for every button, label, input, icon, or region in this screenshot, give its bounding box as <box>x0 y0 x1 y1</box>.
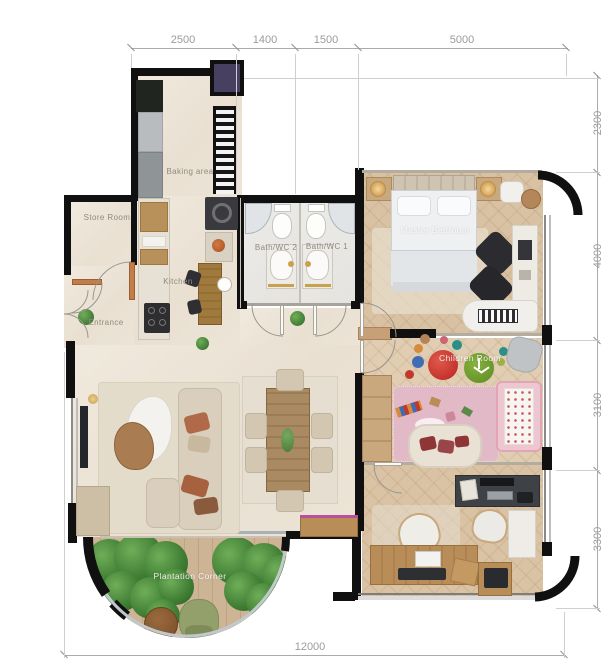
extension-line <box>236 54 237 194</box>
wall-segment <box>542 447 552 470</box>
sofa-pillow <box>454 435 469 447</box>
cutting-board <box>140 249 168 265</box>
dim-right-4000: 4000 <box>591 228 605 284</box>
extension-line <box>64 352 65 658</box>
dim-top-1400: 1400 <box>235 33 295 47</box>
living-window <box>71 398 73 503</box>
extension-line <box>564 612 565 658</box>
kitchen-hall-divider <box>240 198 241 308</box>
extension-line <box>556 608 600 609</box>
burner <box>159 307 166 314</box>
bedroom-window <box>544 215 546 325</box>
console-runner <box>300 515 358 518</box>
toy-dot <box>420 334 430 344</box>
coffee-table-wood <box>114 422 154 470</box>
fridge <box>136 80 163 112</box>
dim-top-5000: 5000 <box>432 33 492 47</box>
sofa-pillow <box>193 496 219 515</box>
extension-line <box>244 78 600 79</box>
table-plant <box>281 428 294 452</box>
pot-plant <box>212 239 225 252</box>
entrance-door-leaf <box>72 279 102 285</box>
console-sideboard <box>300 517 358 537</box>
kitchen-island <box>198 263 222 325</box>
dining-chair <box>311 413 333 439</box>
extension-line <box>556 172 600 173</box>
dimension-line-top <box>131 48 568 49</box>
children-door-leaf <box>360 340 364 373</box>
extension-line <box>295 54 296 194</box>
children-window <box>549 345 551 447</box>
wall-segment-thin <box>436 333 544 336</box>
entrance-label: Entrance <box>61 318 151 327</box>
plant-bush <box>246 583 282 619</box>
shaft-box <box>210 60 244 96</box>
sofa-pillow <box>187 435 211 454</box>
extension-line <box>131 54 132 68</box>
plantation-corner-label: Plantation Corner <box>145 571 235 581</box>
bedroom-window <box>549 215 551 325</box>
wall-segment <box>542 542 552 556</box>
faucet-gold <box>288 261 294 267</box>
washer-door <box>212 203 232 223</box>
bath-wc-1-label: Bath/WC 1 <box>282 242 372 251</box>
tv-panel <box>80 406 88 468</box>
toy-dot <box>414 344 423 353</box>
bath-divider-wall <box>299 203 301 303</box>
corridor-plant <box>290 311 305 326</box>
dining-chair <box>245 447 267 473</box>
lounge-cushion <box>185 625 213 638</box>
master-bedroom-label: Master Bedroom <box>390 225 480 235</box>
wall-segment <box>237 301 247 309</box>
faucet-gold <box>305 261 311 267</box>
children-room-label: Children Room <box>425 353 515 363</box>
wall-segment <box>237 195 361 203</box>
table-lamp <box>370 181 386 197</box>
wall-segment <box>333 592 355 601</box>
radiator-rack <box>213 106 237 194</box>
balcony-deck <box>86 537 288 638</box>
console-decor <box>519 270 531 280</box>
store-room-label: Store Room <box>62 213 152 222</box>
dish-stack <box>142 236 166 247</box>
dining-chair <box>276 369 304 391</box>
dining-chair <box>276 490 304 512</box>
desk-keyboard <box>487 491 513 500</box>
towel-bar-gold <box>268 284 294 287</box>
bath2-door-leaf <box>280 305 284 335</box>
burner <box>159 319 166 326</box>
printer <box>484 568 508 588</box>
hall-plant <box>196 337 209 350</box>
bedroom-door-leaf <box>360 303 364 337</box>
dimension-line-bottom <box>64 655 565 656</box>
toilet-bowl <box>272 213 292 239</box>
wall-segment-thin <box>362 170 542 173</box>
pillow <box>437 196 471 216</box>
monitor <box>480 478 514 486</box>
office-window-band <box>358 596 538 600</box>
dining-chair <box>245 413 267 439</box>
floor-lamp-gold <box>88 394 98 404</box>
laptop <box>415 551 441 567</box>
wall-segment <box>352 531 361 600</box>
crib-mattress <box>504 388 534 445</box>
office-window <box>549 470 551 542</box>
dim-right-3100: 3100 <box>591 377 605 433</box>
desk-mat <box>398 568 446 580</box>
headboard <box>393 175 475 191</box>
wall-segment <box>64 195 71 275</box>
dim-right-3300: 3300 <box>591 511 605 567</box>
extension-line <box>556 340 600 341</box>
extension-line <box>358 54 359 170</box>
extension-line <box>556 470 600 471</box>
wall-segment <box>355 168 364 305</box>
desk-papers <box>460 479 479 501</box>
keyboard <box>478 309 518 323</box>
extension-line <box>566 54 567 76</box>
baking-area-label: Baking area <box>145 167 235 176</box>
floor-plan: Store Room Entrance Baking area Kitchen … <box>0 0 616 670</box>
balcony-table <box>144 607 178 638</box>
wall-segment <box>70 195 136 202</box>
sofa-pillow <box>437 439 455 454</box>
toilet-tank <box>308 204 325 212</box>
toy-dot <box>412 356 424 368</box>
toy-dot <box>452 340 462 350</box>
dim-bottom-12000: 12000 <box>280 640 340 654</box>
toilet-bowl <box>306 213 326 239</box>
wall-segment <box>542 325 552 345</box>
bedroom-console <box>512 225 538 309</box>
wall-segment <box>131 195 137 265</box>
bath-bottom-wall <box>244 303 358 306</box>
bath1-door-leaf <box>313 305 317 335</box>
office-window <box>544 470 546 542</box>
balcony-sliding-door-track <box>100 536 288 538</box>
wall-segment <box>66 341 75 398</box>
sofa-chaise <box>146 478 180 528</box>
toy-dot <box>440 336 448 344</box>
console-decor <box>518 240 532 260</box>
bar-stool <box>187 299 203 315</box>
table-lamp <box>480 181 496 197</box>
pillow <box>397 196 431 216</box>
kitchen-label: Kitchen <box>133 277 223 286</box>
dim-top-2500: 2500 <box>153 33 213 47</box>
dim-right-2300: 2300 <box>591 95 605 151</box>
office-cabinet <box>508 510 536 558</box>
tv-console <box>76 486 110 536</box>
bed-bench <box>393 282 475 292</box>
wardrobe <box>362 375 392 462</box>
side-box <box>450 558 480 587</box>
burner <box>148 307 155 314</box>
side-table-round <box>521 189 541 209</box>
toilet-tank <box>274 204 291 212</box>
desk-phone <box>517 492 533 503</box>
kitchen-cabinet <box>138 112 163 152</box>
dining-chair <box>311 447 333 473</box>
children-window <box>544 345 546 447</box>
dim-top-1500: 1500 <box>296 33 356 47</box>
office-door-leaf <box>374 462 402 466</box>
duvet <box>391 250 477 286</box>
toy-dot <box>405 370 414 379</box>
towel-bar-gold <box>305 284 331 287</box>
